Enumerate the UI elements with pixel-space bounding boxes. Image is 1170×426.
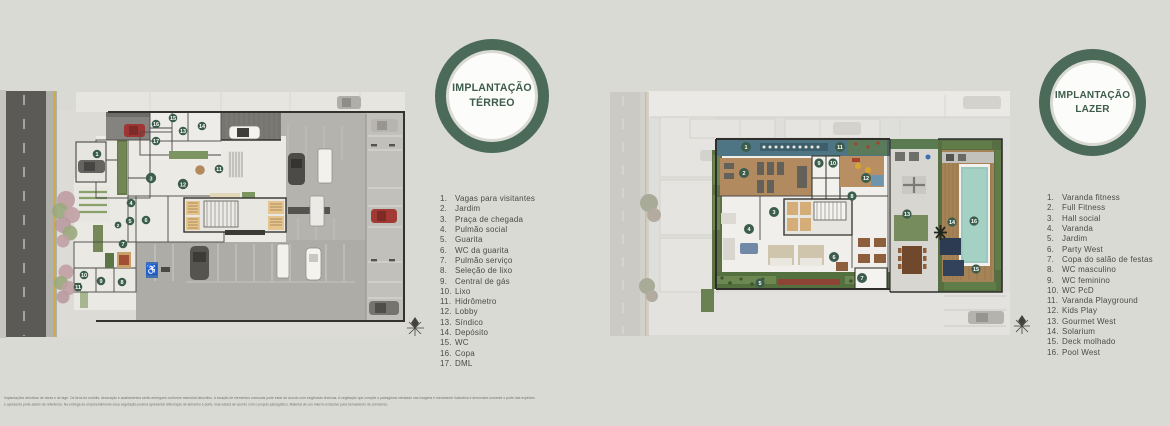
svg-text:14: 14 bbox=[949, 220, 956, 226]
svg-text:11: 11 bbox=[837, 145, 843, 151]
svg-text:3: 3 bbox=[149, 176, 152, 182]
svg-text:2: 2 bbox=[742, 171, 745, 177]
svg-text:6: 6 bbox=[832, 255, 835, 261]
svg-text:17: 17 bbox=[153, 139, 159, 145]
svg-text:16: 16 bbox=[153, 122, 159, 128]
svg-text:7: 7 bbox=[121, 242, 124, 248]
svg-text:14: 14 bbox=[199, 124, 206, 130]
svg-text:5: 5 bbox=[758, 281, 761, 287]
svg-text:10: 10 bbox=[830, 161, 836, 167]
svg-text:11: 11 bbox=[75, 285, 81, 291]
svg-text:5: 5 bbox=[128, 219, 131, 225]
svg-text:3: 3 bbox=[772, 210, 775, 216]
svg-text:7: 7 bbox=[860, 276, 863, 282]
svg-text:♿: ♿ bbox=[146, 263, 158, 276]
svg-text:12: 12 bbox=[863, 176, 869, 182]
svg-text:8: 8 bbox=[120, 280, 123, 286]
svg-text:1: 1 bbox=[744, 145, 747, 151]
svg-text:9: 9 bbox=[99, 279, 102, 285]
svg-text:10: 10 bbox=[81, 273, 87, 279]
svg-text:13: 13 bbox=[180, 129, 186, 135]
svg-text:12: 12 bbox=[180, 182, 186, 188]
svg-text:1: 1 bbox=[95, 152, 98, 158]
svg-text:6: 6 bbox=[144, 218, 147, 224]
svg-text:11: 11 bbox=[216, 167, 222, 173]
svg-text:15: 15 bbox=[973, 267, 979, 273]
svg-text:9: 9 bbox=[817, 161, 820, 167]
svg-text:13: 13 bbox=[904, 212, 910, 218]
svg-text:16: 16 bbox=[971, 219, 977, 225]
svg-text:15: 15 bbox=[170, 116, 176, 122]
svg-text:2: 2 bbox=[117, 223, 120, 228]
svg-text:8: 8 bbox=[850, 194, 853, 200]
